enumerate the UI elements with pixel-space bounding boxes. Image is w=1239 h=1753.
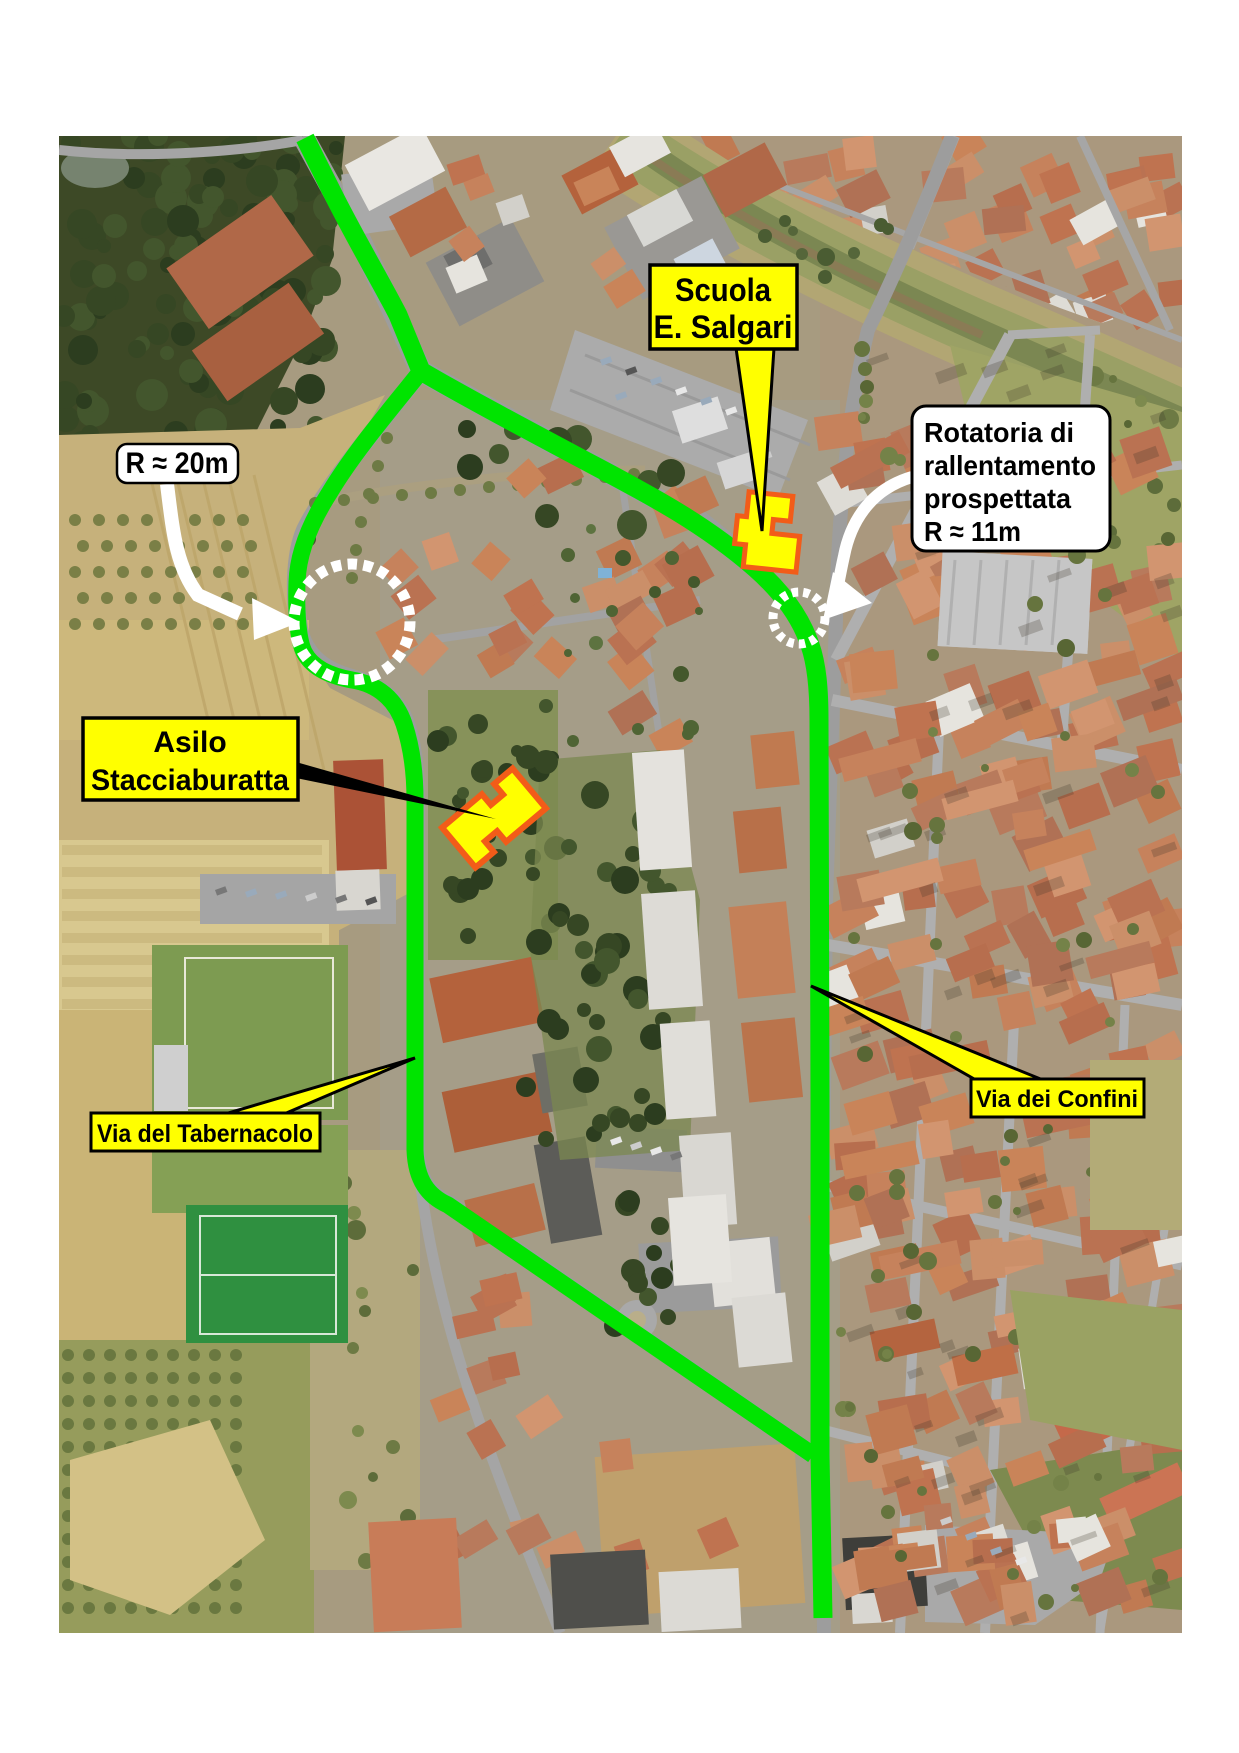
svg-text:Via del Tabernacolo: Via del Tabernacolo (97, 1120, 313, 1148)
svg-text:Via dei Confini: Via dei Confini (976, 1086, 1138, 1113)
svg-text:Scuola: Scuola (675, 272, 771, 308)
svg-text:R ≈ 11m: R ≈ 11m (924, 516, 1021, 547)
svg-text:R ≈ 20m: R ≈ 20m (126, 447, 229, 480)
svg-text:Asilo: Asilo (153, 726, 226, 759)
svg-text:E. Salgari: E. Salgari (654, 309, 793, 345)
svg-text:prospettata: prospettata (924, 483, 1071, 514)
svg-text:Rotatoria di: Rotatoria di (924, 417, 1074, 448)
svg-text:Stacciaburatta: Stacciaburatta (91, 764, 289, 797)
svg-text:rallentamento: rallentamento (924, 450, 1096, 481)
